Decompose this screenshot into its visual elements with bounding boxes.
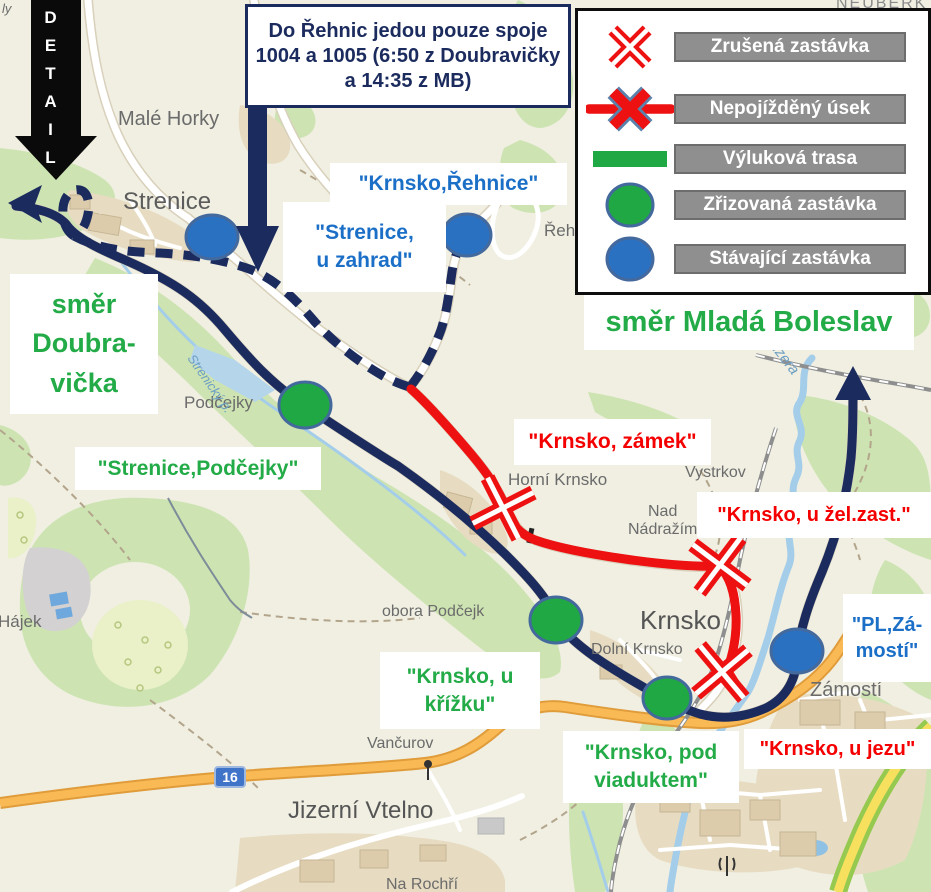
place-label-krnsko: Krnsko <box>640 606 721 636</box>
place-label-rehnice-partial: Řeh <box>544 221 575 241</box>
existing-stop-marker <box>771 629 823 673</box>
stop-label-krnsko-u-jezu: "Krnsko, u jezu" <box>744 729 931 769</box>
legend: Zrušená zastávka Nepojížděný úsek Výluko… <box>575 8 931 295</box>
stop-label-krnsko-pod-viaduktem: "Krnsko, pod viaduktem" <box>563 731 739 803</box>
existing-stop-marker <box>186 215 238 259</box>
stop-label-krnsko-u-krizku: "Krnsko, u křížku" <box>380 652 540 729</box>
place-label-male-horky: Malé Horky <box>118 108 219 131</box>
stop-label-krnsko-zamek: "Krnsko, zámek" <box>514 419 711 465</box>
existing-stop-icon <box>586 235 674 283</box>
stop-label-strenice-u-zahrad: "Strenice, u zahrad" <box>283 202 446 292</box>
place-label-na-roch: Na Rochří <box>386 876 458 892</box>
place-label-hajek: Hájek <box>0 612 41 632</box>
place-label-dolni-krnsko: Dolní Krnsko <box>591 641 683 659</box>
place-label-strenice: Strenice <box>123 188 211 216</box>
legend-row-detour-route: Výluková trasa <box>586 144 920 174</box>
detour-route-icon <box>586 150 674 168</box>
legend-label: Zrušená zastávka <box>674 32 906 62</box>
place-label-vystrkov: Vystrkov <box>685 464 746 482</box>
place-label-zamosti: Zámostí <box>810 679 882 702</box>
closed-section-icon <box>586 80 674 138</box>
place-label-nad-nadrazim: Nad Nádražím <box>628 503 697 540</box>
existing-stop-marker <box>443 214 491 256</box>
stop-label-krnsko-rehnice: "Krnsko,Řehnice" <box>330 163 567 205</box>
legend-label: Výluková trasa <box>674 144 906 174</box>
new-stop-marker <box>530 597 582 643</box>
stop-label-pl-zamosti: "PL,Zá- mostí" <box>843 594 931 682</box>
cancelled-stop-icon <box>586 20 674 74</box>
place-label-obora-podcejk: obora Podčejk <box>382 603 484 621</box>
legend-label: Nepojížděný úsek <box>674 94 906 124</box>
place-label-partial: ly <box>2 2 11 17</box>
legend-row-existing-stop: Stávající zastávka <box>586 235 920 283</box>
service-info-box: Do Řehnic jedou pouze spoje 1004 a 1005 … <box>245 4 571 108</box>
detour-map: NEUBERK Malé Horky Strenice Podčejky Háj… <box>0 0 931 892</box>
place-label-vancurov: Vančurov <box>367 735 433 753</box>
legend-row-new-stop: Zřizovaná zastávka <box>586 181 920 229</box>
direction-label-doubravicka: směr Doubra- vička <box>10 274 158 414</box>
legend-row-closed-section: Nepojížděný úsek <box>586 80 920 138</box>
legend-label: Zřizovaná zastávka <box>674 190 906 220</box>
direction-label-mlada-boleslav: směr Mladá Boleslav <box>584 295 914 350</box>
place-label-horni-krnsko: Horní Krnsko <box>508 470 607 490</box>
stop-label-strenice-podcejky: "Strenice,Podčejky" <box>75 447 321 490</box>
road-16-shield: 16 <box>214 766 246 788</box>
legend-row-cancelled-stop: Zrušená zastávka <box>586 20 920 74</box>
legend-label: Stávající zastávka <box>674 244 906 274</box>
new-stop-marker <box>643 677 691 719</box>
place-label-jizerni-vtelno: Jizerní Vtelno <box>288 797 433 825</box>
new-stop-marker <box>279 382 331 428</box>
detail-arrow-label: DETAIL <box>40 8 60 176</box>
new-stop-icon <box>586 181 674 229</box>
stop-label-krnsko-u-zel-zast: "Krnsko, u žel.zast." <box>697 492 931 538</box>
